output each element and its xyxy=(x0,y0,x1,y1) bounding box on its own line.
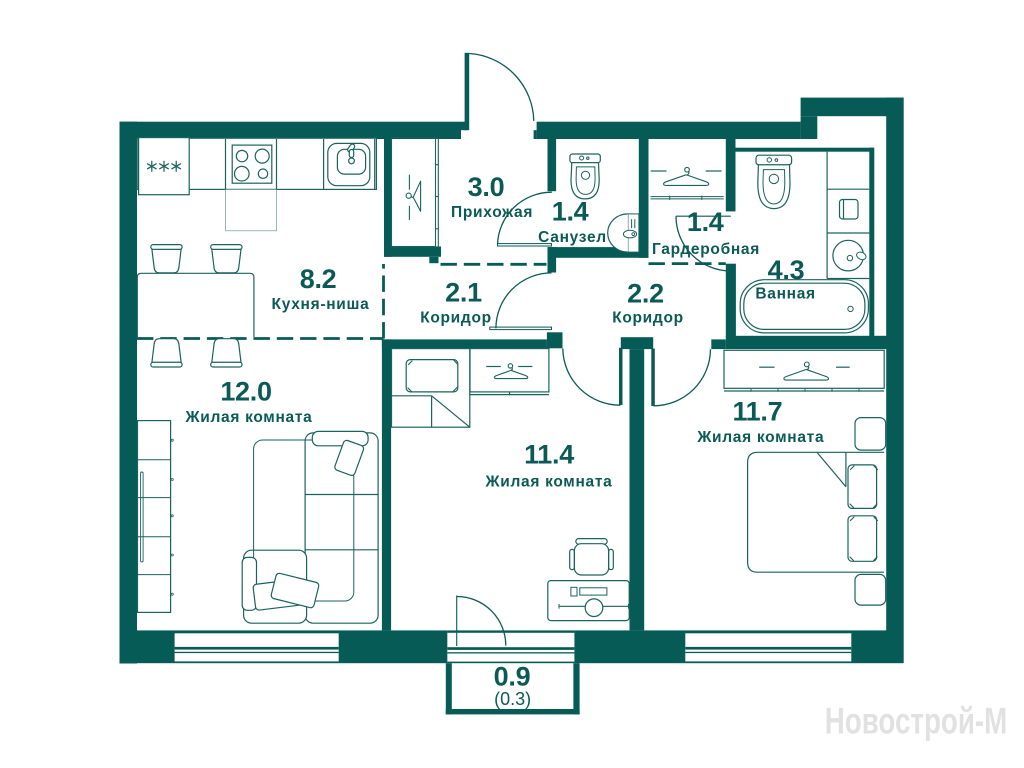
svg-text:Кухня-ниша: Кухня-ниша xyxy=(272,296,370,313)
svg-text:Ванная: Ванная xyxy=(755,286,815,303)
svg-text:Прихожая: Прихожая xyxy=(451,204,533,221)
svg-text:Коридор: Коридор xyxy=(612,310,684,327)
svg-text:Санузел: Санузел xyxy=(538,229,607,246)
svg-text:12.0: 12.0 xyxy=(220,377,271,407)
svg-text:1.4: 1.4 xyxy=(552,196,589,226)
svg-text:0.9: 0.9 xyxy=(494,662,531,692)
svg-text:Жилая комната: Жилая комната xyxy=(185,409,313,426)
svg-text:3.0: 3.0 xyxy=(468,172,505,202)
svg-text:Коридор: Коридор xyxy=(420,310,492,327)
svg-text:11.7: 11.7 xyxy=(732,397,782,427)
svg-text:Гардеробная: Гардеробная xyxy=(652,241,760,258)
svg-text:Новострой-М: Новострой-М xyxy=(825,700,1008,742)
svg-text:Жилая комната: Жилая комната xyxy=(485,474,613,491)
svg-text:8.2: 8.2 xyxy=(300,264,337,294)
svg-text:(0.3): (0.3) xyxy=(494,689,531,709)
svg-text:11.4: 11.4 xyxy=(524,439,574,469)
svg-text:Жилая комната: Жилая комната xyxy=(696,429,824,446)
svg-text:4.3: 4.3 xyxy=(768,255,805,285)
svg-text:2.2: 2.2 xyxy=(627,278,664,308)
svg-text:1.4: 1.4 xyxy=(687,207,724,237)
svg-text:2.1: 2.1 xyxy=(445,277,482,307)
